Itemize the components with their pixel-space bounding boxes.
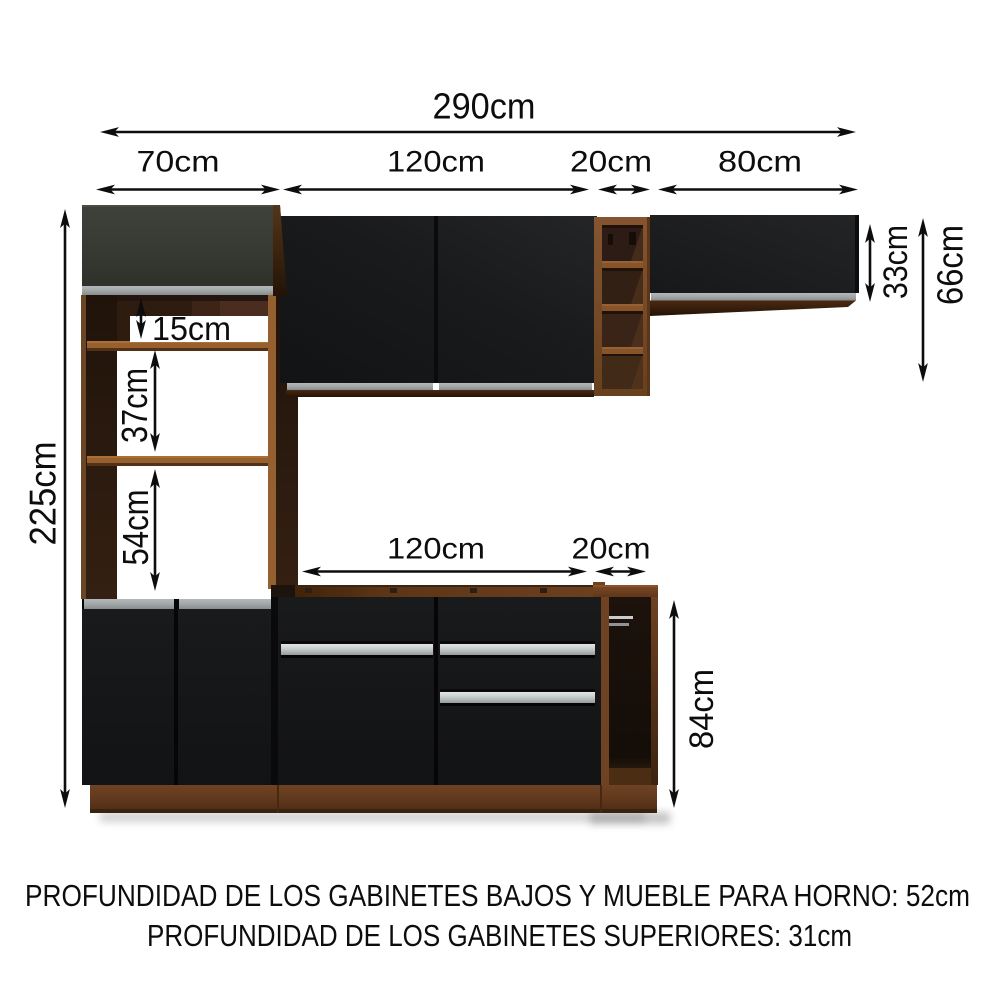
svg-text:PROFUNDIDAD DE LOS GABINETES B: PROFUNDIDAD DE LOS GABINETES BAJOS Y MUE… xyxy=(25,878,970,913)
svg-text:54cm: 54cm xyxy=(115,490,156,566)
svg-text:20cm: 20cm xyxy=(572,533,651,566)
svg-text:70cm: 70cm xyxy=(137,146,220,179)
svg-text:15cm: 15cm xyxy=(152,310,231,347)
svg-text:20cm: 20cm xyxy=(570,146,652,179)
svg-text:84cm: 84cm xyxy=(683,669,721,749)
svg-text:37cm: 37cm xyxy=(114,368,155,443)
svg-text:PROFUNDIDAD DE LOS GABINETES S: PROFUNDIDAD DE LOS GABINETES SUPERIORES:… xyxy=(147,918,852,953)
svg-text:120cm: 120cm xyxy=(387,533,485,566)
svg-text:290cm: 290cm xyxy=(433,86,536,127)
svg-text:120cm: 120cm xyxy=(387,146,485,179)
svg-text:225cm: 225cm xyxy=(23,442,64,546)
svg-text:66cm: 66cm xyxy=(930,225,971,305)
svg-text:33cm: 33cm xyxy=(877,225,915,299)
svg-text:80cm: 80cm xyxy=(718,146,802,179)
